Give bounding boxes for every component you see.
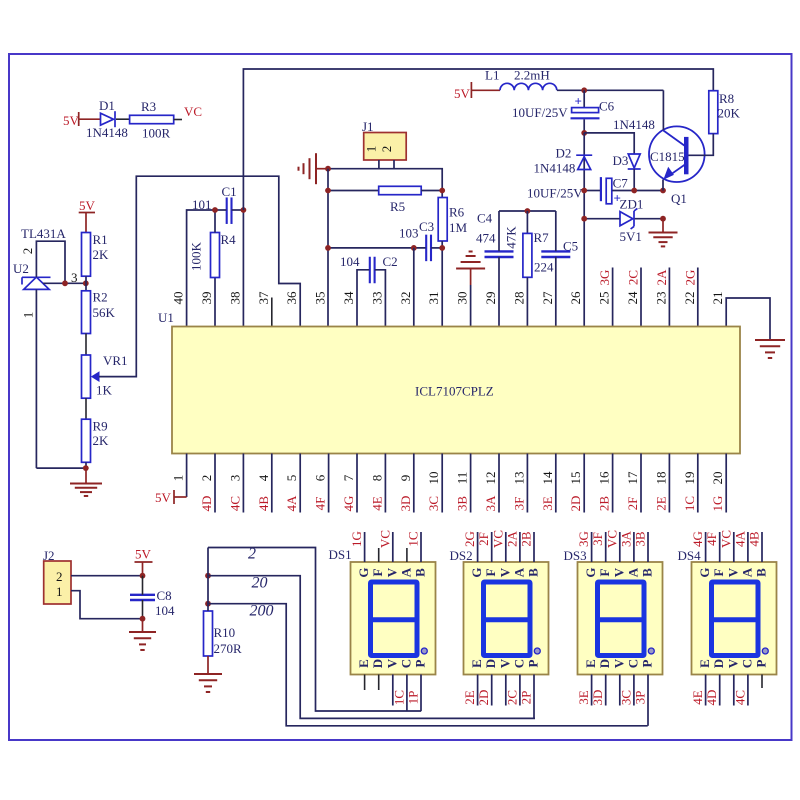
svg-text:20: 20	[252, 575, 268, 592]
svg-text:38: 38	[227, 292, 242, 305]
svg-text:47K: 47K	[504, 226, 519, 249]
svg-text:2.2mH: 2.2mH	[514, 68, 550, 83]
svg-text:4D: 4D	[199, 496, 214, 512]
svg-text:16: 16	[597, 471, 612, 485]
svg-text:2B: 2B	[519, 531, 534, 547]
svg-text:2G: 2G	[462, 531, 477, 547]
svg-text:36: 36	[284, 291, 299, 305]
svg-text:P: P	[640, 659, 655, 667]
svg-text:31: 31	[426, 292, 441, 305]
svg-text:19: 19	[682, 472, 697, 485]
svg-text:ZD1: ZD1	[620, 197, 644, 212]
svg-text:V: V	[611, 567, 626, 577]
svg-text:21: 21	[710, 292, 725, 305]
svg-text:G: G	[356, 567, 371, 577]
svg-text:D3: D3	[613, 153, 629, 168]
svg-text:3D: 3D	[398, 496, 413, 512]
svg-text:35: 35	[313, 292, 328, 305]
svg-text:4: 4	[256, 474, 271, 481]
svg-text:V: V	[384, 567, 399, 577]
svg-text:DS1: DS1	[329, 547, 352, 562]
svg-text:VR1: VR1	[103, 353, 128, 368]
svg-text:5V: 5V	[155, 490, 172, 505]
svg-text:3: 3	[71, 270, 78, 285]
svg-text:474: 474	[476, 231, 496, 246]
svg-text:A: A	[511, 567, 526, 577]
svg-text:5V: 5V	[79, 198, 96, 213]
svg-text:27: 27	[540, 291, 555, 305]
svg-text:F: F	[597, 568, 612, 576]
svg-text:101: 101	[192, 197, 212, 212]
svg-text:1C: 1C	[406, 531, 421, 546]
svg-text:DS3: DS3	[564, 548, 587, 563]
svg-text:1: 1	[364, 146, 379, 153]
svg-text:VC: VC	[490, 530, 505, 548]
svg-text:C1815: C1815	[650, 149, 685, 164]
svg-text:3A: 3A	[618, 530, 633, 547]
svg-text:P: P	[526, 659, 541, 667]
svg-text:4G: 4G	[341, 496, 356, 512]
svg-text:1K: 1K	[96, 383, 113, 398]
svg-text:R10: R10	[214, 625, 236, 640]
svg-text:2E: 2E	[462, 690, 477, 705]
svg-text:1N4148: 1N4148	[613, 117, 655, 132]
svg-text:V: V	[384, 658, 399, 668]
svg-text:U1: U1	[158, 310, 174, 325]
svg-text:8: 8	[369, 475, 384, 482]
svg-text:E: E	[469, 659, 484, 668]
svg-text:C2: C2	[383, 254, 398, 269]
svg-text:30: 30	[455, 292, 470, 305]
svg-text:10UF/25V: 10UF/25V	[512, 105, 568, 120]
svg-text:1G: 1G	[349, 531, 364, 547]
svg-text:2C: 2C	[504, 690, 519, 705]
svg-text:P: P	[754, 659, 769, 667]
svg-text:26: 26	[568, 291, 583, 305]
svg-text:2E: 2E	[653, 496, 668, 511]
svg-text:4C: 4C	[732, 690, 747, 705]
svg-text:39: 39	[199, 292, 214, 305]
svg-text:3D: 3D	[590, 690, 605, 706]
svg-text:200: 200	[250, 603, 274, 620]
svg-text:3G: 3G	[597, 270, 612, 286]
svg-text:100K: 100K	[189, 241, 204, 271]
svg-text:V: V	[725, 567, 740, 577]
svg-text:E: E	[583, 659, 598, 668]
svg-text:R3: R3	[141, 99, 156, 114]
svg-text:D: D	[597, 659, 612, 668]
svg-text:1C: 1C	[391, 690, 406, 705]
svg-text:23: 23	[653, 292, 668, 305]
svg-text:C4: C4	[477, 211, 493, 226]
svg-text:B: B	[413, 568, 428, 577]
svg-text:DS2: DS2	[450, 548, 473, 563]
svg-text:Q1: Q1	[671, 191, 687, 206]
svg-text:VC: VC	[377, 530, 392, 548]
svg-text:2D: 2D	[476, 690, 491, 706]
svg-text:1N4148: 1N4148	[534, 161, 576, 176]
svg-text:4F: 4F	[313, 497, 328, 511]
svg-text:G: G	[697, 567, 712, 577]
svg-text:40: 40	[171, 292, 186, 305]
svg-text:L1: L1	[485, 68, 499, 83]
svg-text:D: D	[711, 659, 726, 668]
svg-text:2: 2	[20, 248, 35, 255]
svg-text:12: 12	[483, 472, 498, 485]
svg-text:C7: C7	[613, 175, 629, 190]
svg-text:2A: 2A	[504, 530, 519, 547]
svg-text:E: E	[697, 659, 712, 668]
svg-text:VC: VC	[718, 530, 733, 548]
svg-text:4F: 4F	[704, 532, 719, 546]
svg-text:104: 104	[340, 254, 360, 269]
svg-text:2F: 2F	[476, 532, 491, 546]
svg-text:A: A	[398, 567, 413, 577]
svg-text:1G: 1G	[710, 496, 725, 512]
svg-text:VC: VC	[604, 530, 619, 548]
svg-text:5: 5	[284, 475, 299, 482]
svg-text:C: C	[625, 659, 640, 668]
svg-text:R8: R8	[719, 91, 734, 106]
svg-text:2: 2	[248, 546, 256, 563]
svg-text:3E: 3E	[540, 496, 555, 511]
svg-text:F: F	[370, 568, 385, 576]
svg-text:4E: 4E	[369, 496, 384, 511]
svg-text:34: 34	[341, 291, 356, 305]
svg-text:V: V	[497, 658, 512, 668]
svg-text:4B: 4B	[747, 531, 762, 547]
svg-text:R5: R5	[390, 199, 405, 214]
svg-text:14: 14	[540, 471, 555, 485]
svg-text:4E: 4E	[690, 690, 705, 705]
svg-text:2K: 2K	[93, 433, 110, 448]
svg-text:1: 1	[171, 475, 186, 482]
svg-text:6: 6	[313, 474, 328, 481]
svg-text:B: B	[754, 568, 769, 577]
svg-text:25: 25	[597, 292, 612, 305]
svg-text:2B: 2B	[597, 496, 612, 512]
svg-text:3P: 3P	[633, 691, 648, 705]
svg-text:20K: 20K	[718, 106, 741, 121]
svg-text:B: B	[526, 568, 541, 577]
svg-text:A: A	[739, 567, 754, 577]
svg-text:R6: R6	[449, 205, 465, 220]
svg-text:VC: VC	[184, 104, 202, 119]
svg-text:56K: 56K	[93, 305, 116, 320]
svg-text:22: 22	[682, 292, 697, 305]
svg-text:15: 15	[568, 472, 583, 485]
svg-text:11: 11	[455, 472, 470, 485]
svg-text:P: P	[413, 659, 428, 667]
svg-text:4D: 4D	[704, 690, 719, 706]
svg-text:5V: 5V	[454, 86, 471, 101]
svg-text:37: 37	[256, 291, 271, 305]
svg-text:F: F	[483, 568, 498, 576]
svg-text:9: 9	[398, 475, 413, 482]
svg-text:5V: 5V	[63, 113, 80, 128]
svg-text:1: 1	[56, 584, 63, 599]
svg-text:C3: C3	[419, 219, 434, 234]
svg-text:2A: 2A	[654, 269, 669, 286]
svg-text:R4: R4	[221, 232, 237, 247]
svg-text:3: 3	[227, 475, 242, 482]
svg-text:R9: R9	[93, 419, 108, 434]
svg-text:4G: 4G	[690, 531, 705, 547]
svg-text:4A: 4A	[284, 495, 299, 512]
svg-text:2F: 2F	[625, 497, 640, 511]
svg-text:G: G	[583, 567, 598, 577]
svg-text:17: 17	[625, 471, 640, 485]
svg-text:5V1: 5V1	[620, 229, 642, 244]
svg-text:270R: 270R	[214, 641, 243, 656]
svg-text:3F: 3F	[590, 532, 605, 546]
svg-text:E: E	[356, 659, 371, 668]
svg-text:1M: 1M	[449, 220, 468, 235]
svg-text:100R: 100R	[142, 126, 171, 141]
svg-text:C8: C8	[157, 588, 172, 603]
svg-text:U2: U2	[13, 261, 29, 276]
svg-text:104: 104	[155, 603, 175, 618]
svg-text:3B: 3B	[633, 531, 648, 547]
svg-text:3G: 3G	[576, 531, 591, 547]
svg-text:R1: R1	[93, 232, 108, 247]
svg-text:3C: 3C	[618, 690, 633, 705]
svg-text:5V: 5V	[135, 547, 152, 562]
svg-text:F: F	[711, 568, 726, 576]
svg-text:4B: 4B	[256, 496, 271, 512]
svg-text:18: 18	[653, 472, 668, 485]
svg-text:D: D	[483, 659, 498, 668]
svg-text:10: 10	[426, 472, 441, 485]
svg-text:3B: 3B	[455, 496, 470, 512]
svg-text:10UF/25V: 10UF/25V	[527, 186, 583, 201]
svg-text:33: 33	[369, 292, 384, 305]
svg-text:103: 103	[399, 226, 419, 241]
svg-text:V: V	[725, 658, 740, 668]
svg-text:V: V	[611, 658, 626, 668]
svg-text:TL431A: TL431A	[21, 226, 66, 241]
svg-text:D: D	[370, 659, 385, 668]
svg-text:DS4: DS4	[678, 548, 702, 563]
svg-text:D2: D2	[556, 146, 572, 161]
svg-text:2: 2	[379, 146, 394, 153]
svg-text:4C: 4C	[227, 496, 242, 511]
svg-text:2G: 2G	[682, 270, 697, 286]
svg-text:2D: 2D	[568, 496, 583, 512]
svg-text:C6: C6	[599, 99, 615, 114]
svg-text:V: V	[497, 567, 512, 577]
svg-text:2P: 2P	[519, 691, 534, 705]
svg-text:20: 20	[710, 472, 725, 485]
svg-text:D1: D1	[99, 98, 115, 113]
svg-text:B: B	[640, 568, 655, 577]
svg-text:1: 1	[21, 312, 36, 319]
svg-text:+: +	[575, 94, 582, 109]
svg-text:3C: 3C	[426, 496, 441, 511]
svg-text:1P: 1P	[406, 691, 421, 705]
svg-text:28: 28	[511, 292, 526, 305]
svg-text:ICL7107CPLZ: ICL7107CPLZ	[415, 384, 494, 399]
svg-text:R2: R2	[93, 290, 108, 305]
svg-text:7: 7	[341, 474, 356, 481]
svg-text:32: 32	[398, 292, 413, 305]
svg-text:2: 2	[199, 475, 214, 482]
svg-text:3A: 3A	[483, 495, 498, 512]
svg-text:24: 24	[625, 291, 640, 305]
svg-text:R7: R7	[534, 230, 550, 245]
svg-text:C1: C1	[222, 184, 237, 199]
svg-text:2K: 2K	[93, 247, 110, 262]
svg-text:A: A	[625, 567, 640, 577]
svg-text:C: C	[398, 659, 413, 668]
svg-text:2: 2	[56, 569, 63, 584]
svg-text:C: C	[739, 659, 754, 668]
svg-text:224: 224	[534, 260, 554, 275]
svg-text:29: 29	[483, 292, 498, 305]
svg-text:1N4148: 1N4148	[86, 125, 128, 140]
svg-text:G: G	[469, 567, 484, 577]
svg-text:13: 13	[511, 472, 526, 485]
svg-text:4A: 4A	[732, 530, 747, 547]
svg-text:2C: 2C	[626, 270, 641, 285]
svg-text:C: C	[511, 659, 526, 668]
svg-text:1C: 1C	[682, 496, 697, 511]
svg-text:3F: 3F	[511, 497, 526, 511]
svg-text:3E: 3E	[576, 690, 591, 705]
